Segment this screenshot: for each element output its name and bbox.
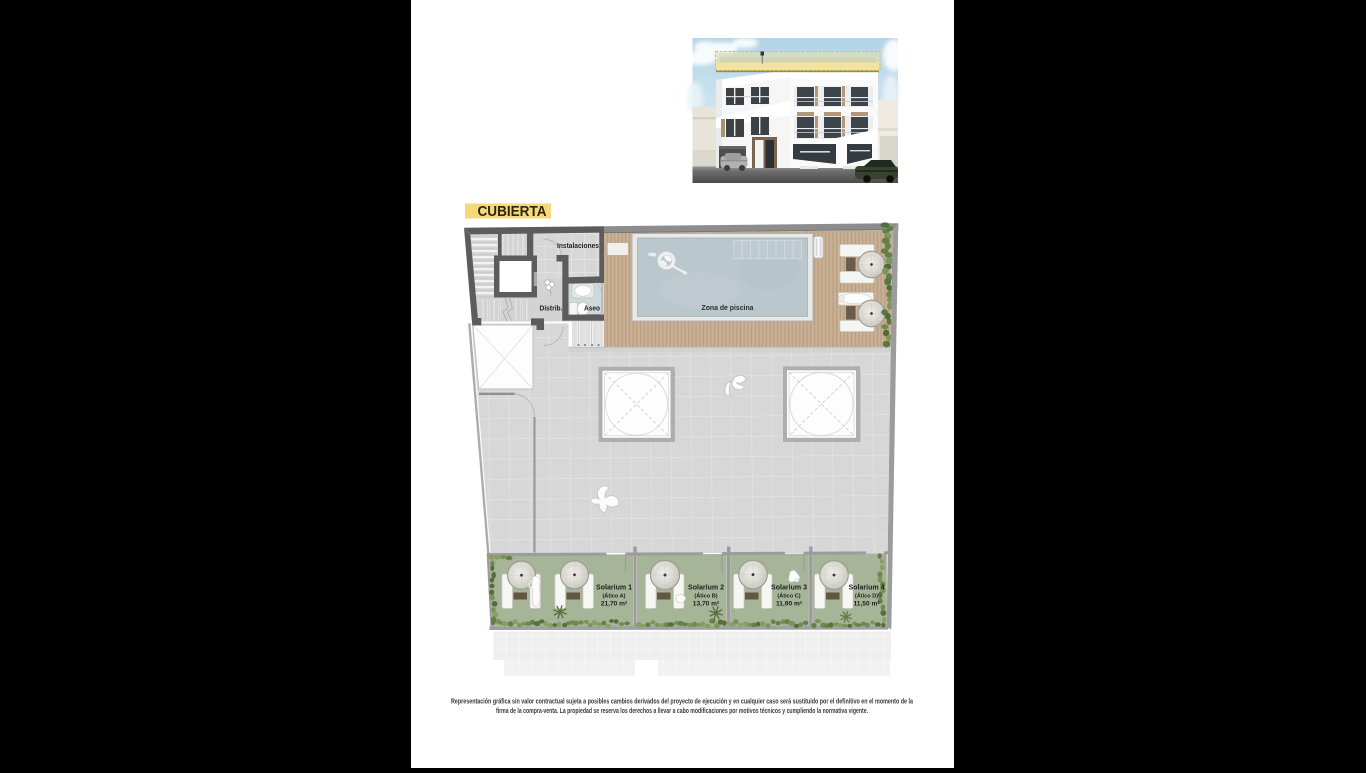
svg-text:Representación gráfica sin val: Representación gráfica sin valor contrac… [451,699,913,706]
svg-text:(Ático C): (Ático C) [777,593,800,600]
svg-text:Instalaciones: Instalaciones [557,241,599,250]
svg-text:Aseo: Aseo [584,304,600,313]
svg-text:Solarium 3: Solarium 3 [771,583,807,592]
svg-text:11,50 m²: 11,50 m² [853,601,880,608]
svg-text:Solarium 2: Solarium 2 [688,583,724,592]
svg-text:21,70 m²: 21,70 m² [601,601,628,608]
svg-text:13,70 m²: 13,70 m² [693,601,720,608]
svg-text:(Ático D): (Ático D) [855,593,878,600]
svg-text:Solarium 1: Solarium 1 [596,583,632,592]
svg-text:CUBIERTA: CUBIERTA [478,204,547,220]
svg-text:(Ático A): (Ático A) [602,593,625,600]
svg-text:firma de la compra-venta. La p: firma de la compra-venta. La propiedad s… [496,708,868,715]
svg-text:11,90 m²: 11,90 m² [776,601,803,608]
svg-text:Zona de piscina: Zona de piscina [702,303,755,312]
svg-text:(Ático B): (Ático B) [694,593,717,600]
svg-text:Solarium 4: Solarium 4 [849,583,885,592]
svg-text:Distrib.: Distrib. [540,304,563,313]
